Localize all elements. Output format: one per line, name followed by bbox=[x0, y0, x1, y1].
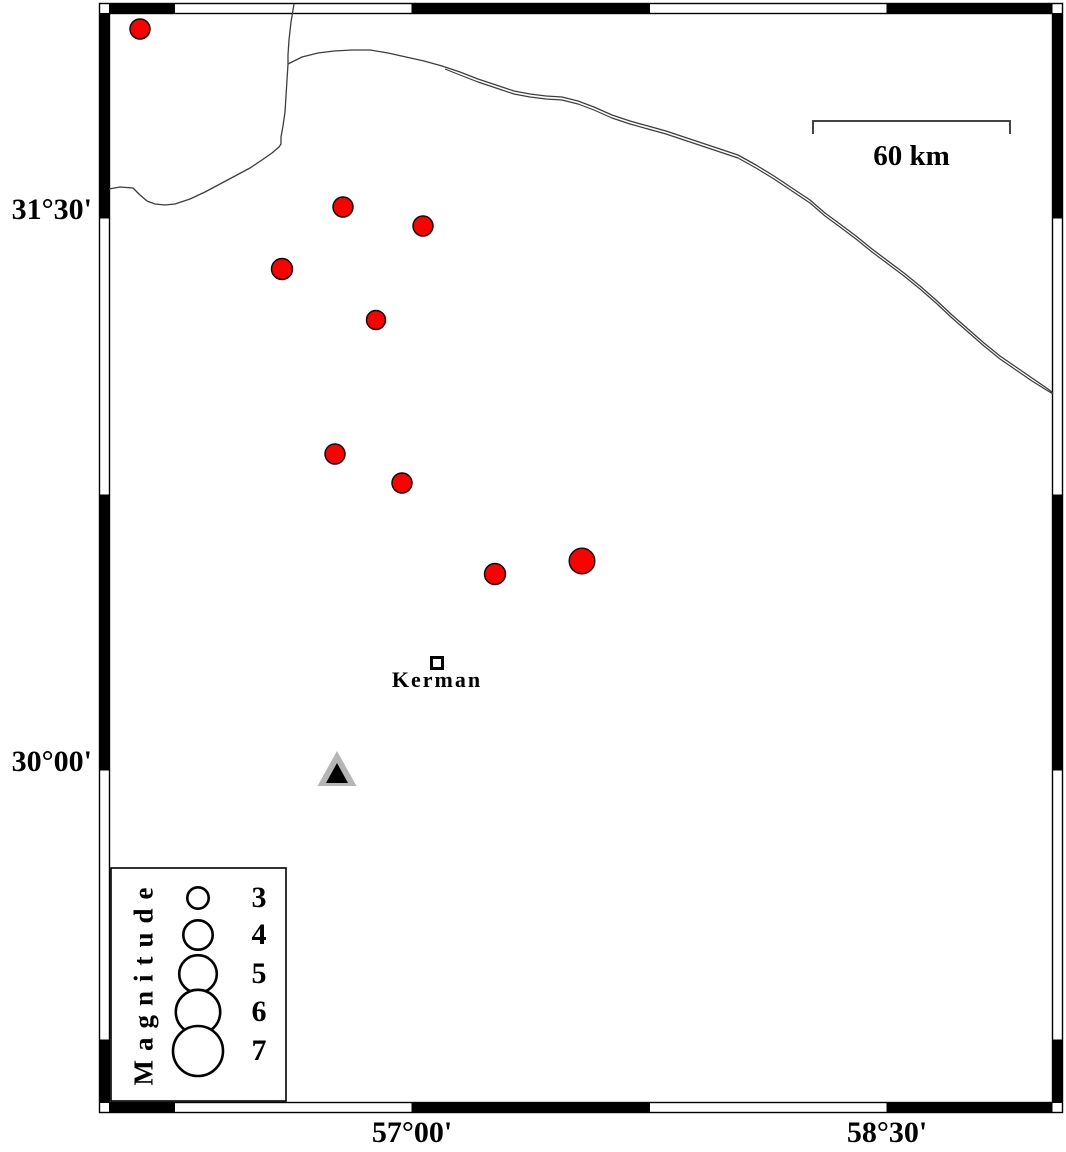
earthquake-marker bbox=[333, 197, 353, 217]
map-canvas bbox=[0, 0, 1066, 1152]
legend-magnitude-label: 3 bbox=[229, 878, 289, 918]
frame-tick-segment bbox=[412, 3, 650, 13]
axis-label-bottom-1: 58°30' bbox=[802, 1118, 972, 1148]
legend-magnitude-circle bbox=[179, 955, 217, 993]
frame-tick-segment bbox=[99, 13, 109, 218]
station-triangle-marker bbox=[318, 751, 357, 786]
earthquake-marker bbox=[272, 259, 293, 280]
frame-tick-segment bbox=[887, 3, 1053, 13]
legend-magnitude-circle bbox=[183, 920, 212, 949]
earthquake-marker bbox=[367, 311, 386, 330]
legend-magnitude-label: 5 bbox=[229, 954, 289, 994]
city-label: Kerman bbox=[357, 669, 517, 691]
frame-tick-segment bbox=[1053, 13, 1063, 218]
earthquake-marker bbox=[485, 564, 506, 585]
legend-title: Magnitude bbox=[131, 878, 158, 1085]
earthquake-marker bbox=[392, 473, 412, 493]
earthquake-marker bbox=[130, 19, 150, 39]
earthquake-marker bbox=[325, 444, 345, 464]
boundary-line-northeast-inner bbox=[445, 69, 1053, 394]
frame-tick-segment bbox=[109, 1103, 175, 1113]
frame-tick-segment bbox=[412, 1103, 650, 1113]
seismicity-map-figure: 31°30' 30°00' 57°00' 58°30' 60 km Kerman… bbox=[0, 0, 1066, 1152]
frame-tick-segment bbox=[1053, 1040, 1063, 1103]
scale-bar-label: 60 km bbox=[812, 142, 1012, 171]
frame-tick-segment bbox=[887, 1103, 1053, 1113]
frame-tick-segment bbox=[99, 495, 109, 770]
earthquake-markers-layer bbox=[130, 19, 595, 585]
axis-label-bottom-0: 57°00' bbox=[327, 1118, 497, 1148]
legend-magnitude-label: 6 bbox=[229, 992, 289, 1032]
legend-magnitude-label: 4 bbox=[229, 915, 289, 955]
earthquake-marker bbox=[569, 548, 595, 574]
legend-magnitude-circle bbox=[187, 887, 208, 908]
legend-magnitude-label: 7 bbox=[229, 1031, 289, 1071]
frame-tick-segment bbox=[99, 1040, 109, 1103]
axis-label-left-0: 31°30' bbox=[0, 195, 92, 225]
frame-tick-segment bbox=[1053, 495, 1063, 770]
frame-tick-segment bbox=[109, 3, 175, 13]
scale-bar-bracket bbox=[813, 121, 1010, 134]
earthquake-marker bbox=[413, 216, 433, 236]
axis-label-left-1: 30°00' bbox=[0, 747, 92, 777]
boundary-line-northeast-outer bbox=[288, 50, 1053, 393]
legend-magnitude-circle bbox=[173, 1026, 223, 1076]
scale-bar bbox=[813, 121, 1010, 134]
